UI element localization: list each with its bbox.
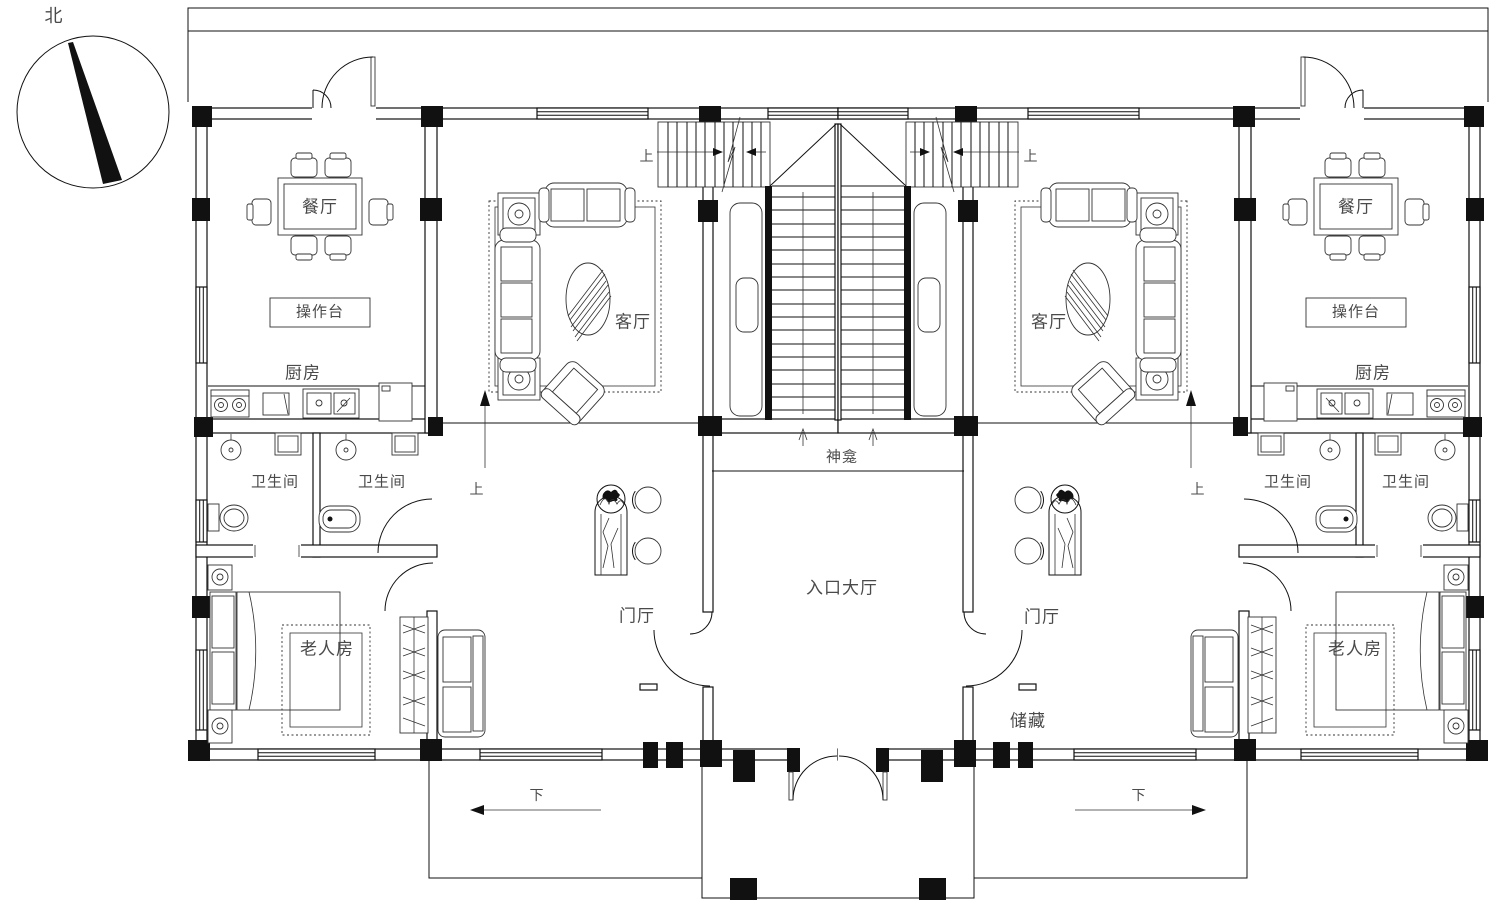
room-label-bathroom-left-2: 卫生间 [358, 475, 406, 490]
room-label-elder-bedroom-left: 老人房 [300, 641, 354, 658]
room-label-elder-bedroom-right: 老人房 [1328, 641, 1382, 658]
terrace-down-label-left: 下 [530, 788, 545, 802]
room-label-counter-left: 操作台 [296, 305, 344, 320]
room-label-dining-right: 餐厅 [1338, 199, 1374, 216]
stair-up-label-left: 上 [640, 149, 655, 163]
room-label-kitchen-left: 厨房 [285, 365, 321, 382]
room-label-entrance-hall: 入口大厅 [806, 580, 878, 597]
room-label-foyer-right: 门厅 [1024, 609, 1060, 626]
compass [17, 36, 169, 188]
room-label-storage: 储藏 [1010, 713, 1046, 730]
hall-up-label-right: 上 [1191, 482, 1206, 496]
room-label-living-right: 客厅 [1031, 314, 1067, 331]
floor-plan-drawing [0, 0, 1500, 907]
right-unit [838, 8, 1488, 900]
compass-north-label: 北 [45, 7, 64, 25]
room-label-living-left: 客厅 [615, 314, 651, 331]
room-label-counter-right: 操作台 [1332, 305, 1380, 320]
room-label-foyer-left: 门厅 [619, 608, 655, 625]
floor-plan-page: 北 餐厅 餐厅 操作台 操作台 厨房 厨房 客厅 客厅 卫生间 卫生间 卫生间 … [0, 0, 1500, 907]
room-label-dining-left: 餐厅 [302, 199, 338, 216]
room-label-bathroom-right-2: 卫生间 [1382, 475, 1430, 490]
room-label-bathroom-right-1: 卫生间 [1264, 475, 1312, 490]
hall-up-label-left: 上 [470, 482, 485, 496]
room-label-kitchen-right: 厨房 [1355, 365, 1391, 382]
compass-needle [68, 42, 122, 184]
left-unit [188, 8, 838, 900]
terrace-down-label-right: 下 [1132, 788, 1147, 802]
room-label-bathroom-left-1: 卫生间 [251, 475, 299, 490]
stair-up-label-right: 上 [1024, 149, 1039, 163]
room-label-shrine: 神龛 [826, 450, 858, 465]
